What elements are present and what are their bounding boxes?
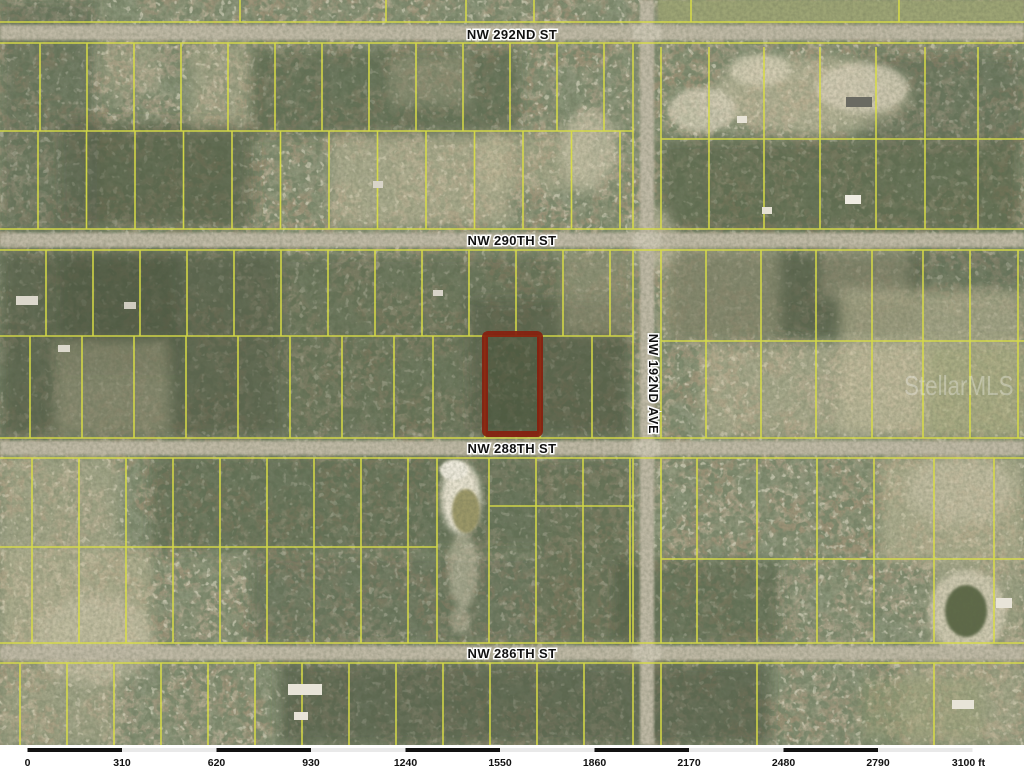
svg-text:1550: 1550 [488,757,512,768]
svg-text:0: 0 [25,757,31,768]
svg-text:2170: 2170 [677,757,701,768]
svg-text:1860: 1860 [583,757,607,768]
svg-text:StellarMLS: StellarMLS [904,371,1014,402]
svg-text:620: 620 [208,757,226,768]
svg-text:NW 192ND AVE: NW 192ND AVE [646,334,660,435]
svg-text:2790: 2790 [866,757,890,768]
svg-text:2480: 2480 [772,757,796,768]
svg-text:930: 930 [302,757,320,768]
svg-text:NW 286TH ST: NW 286TH ST [468,646,557,661]
svg-text:NW 292ND ST: NW 292ND ST [467,27,557,42]
svg-text:NW 290TH ST: NW 290TH ST [468,233,557,248]
svg-text:1240: 1240 [394,757,418,768]
svg-text:3100 ft: 3100 ft [952,757,986,768]
svg-text:310: 310 [113,757,131,768]
svg-text:NW 288TH ST: NW 288TH ST [468,441,557,456]
